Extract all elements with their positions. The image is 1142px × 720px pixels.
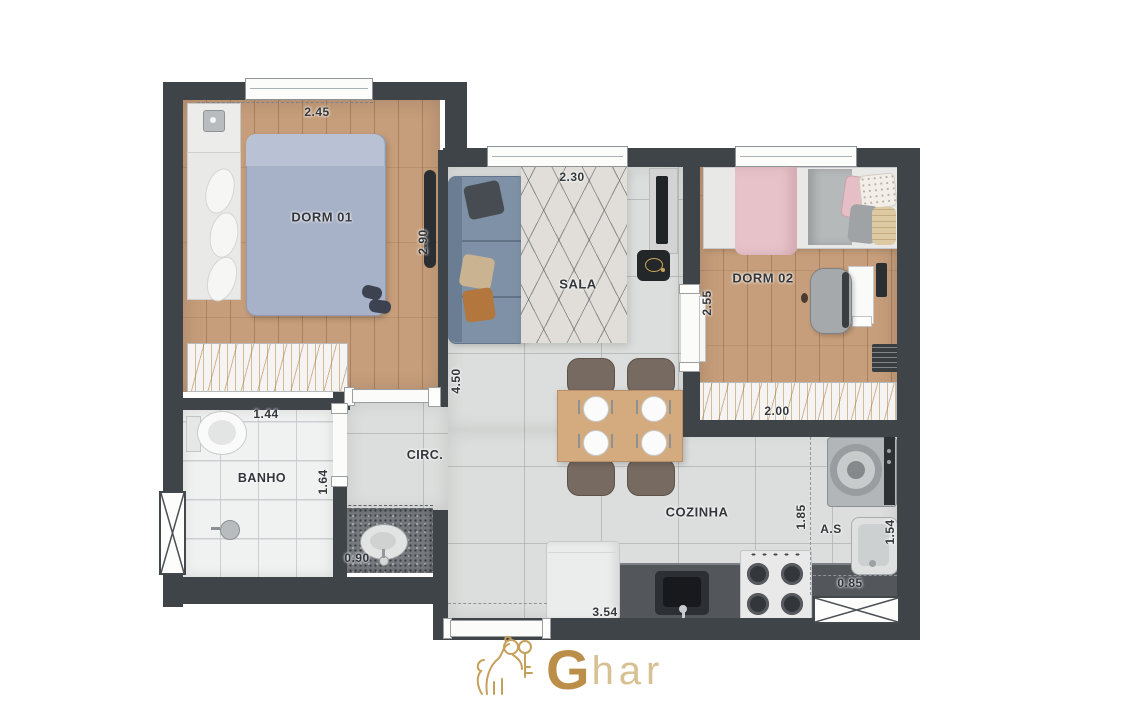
washer-panel-dot <box>887 460 891 464</box>
cozinha-height-dim: 1.85 <box>794 504 808 529</box>
washer-panel <box>884 437 895 505</box>
desk-chair-back <box>842 272 849 328</box>
door-jamb <box>428 387 441 407</box>
door-jamb <box>331 476 348 487</box>
dorm02-height-dim: 2.55 <box>700 290 714 315</box>
circ-label: CIRC. <box>407 448 444 462</box>
stove-knobs <box>748 552 804 557</box>
fridge-divider <box>548 552 616 553</box>
cozinha-width-dim: 3.54 <box>592 605 617 619</box>
banho-window <box>159 491 186 575</box>
plate <box>583 430 609 456</box>
as-divider-dash <box>810 437 811 595</box>
counter-dash <box>338 505 433 506</box>
sofa-cushion-line <box>462 240 523 242</box>
lion-and-key-icon <box>472 634 542 707</box>
banho-door-opening <box>333 412 347 478</box>
dorm01-label: DORM 01 <box>291 210 352 225</box>
cutlery <box>636 434 638 448</box>
sofa-pillow-tan <box>458 253 495 290</box>
dorm01-door-threshold <box>352 389 432 403</box>
lavatory-faucet-stem <box>382 549 385 558</box>
wall-segment <box>897 148 920 640</box>
dorm02-window <box>735 146 857 167</box>
plate <box>641 430 667 456</box>
pillow-knit <box>872 207 896 245</box>
bed-blanket-pink <box>735 167 797 255</box>
stove-burner <box>747 563 769 585</box>
laundry-faucet <box>869 560 876 567</box>
logo: G har <box>472 634 664 707</box>
plate <box>641 396 667 422</box>
sala-label: SALA <box>559 277 596 292</box>
sala-rug <box>521 167 627 343</box>
servico-label: A.S <box>820 522 842 536</box>
dorm01-wardrobe <box>187 343 348 392</box>
logo-text-g: G <box>546 645 590 695</box>
plate <box>583 396 609 422</box>
floor-plan-canvas: DORM 01 2.45 2.90 SALA 2.30 4.50 DORM 02… <box>0 0 1142 720</box>
sala-width-dim: 2.30 <box>559 170 584 184</box>
cutlery <box>611 434 613 448</box>
sala-window <box>487 146 628 167</box>
wall-segment <box>683 420 920 437</box>
kitchen-cabinet-dash <box>448 603 547 604</box>
door-jamb <box>679 362 700 372</box>
cutlery <box>669 434 671 448</box>
monitor <box>876 263 887 297</box>
dorm01-width-dim: 2.45 <box>304 105 329 119</box>
dorm02-label: DORM 02 <box>732 271 793 286</box>
stove-burner <box>747 593 769 615</box>
mouse <box>801 293 808 303</box>
cutlery <box>611 400 613 414</box>
banho-width-dim: 1.44 <box>253 407 278 421</box>
dorm02-wardrobe <box>695 382 897 422</box>
kitchen-sink-basin <box>663 577 701 607</box>
door-jamb <box>331 403 348 414</box>
logo-text-rest: har <box>592 651 665 691</box>
cutlery <box>578 400 580 414</box>
washer-panel-dot <box>887 449 891 453</box>
banho-height-dim: 1.64 <box>316 469 330 494</box>
dorm01-height-dim: 2.90 <box>416 229 430 254</box>
wall-segment <box>445 82 467 154</box>
banho-label: BANHO <box>238 471 286 485</box>
cozinha-label: COZINHA <box>666 505 729 520</box>
wall-segment <box>163 577 438 604</box>
lavatory-width-dim: 0.90 <box>344 551 369 565</box>
lavatory-sink-inner <box>370 532 396 550</box>
servico-height-dim: 1.54 <box>883 519 897 544</box>
shower-handle <box>211 527 220 530</box>
tv <box>656 176 668 244</box>
shower-head <box>220 520 240 540</box>
door-jamb <box>679 284 700 294</box>
dorm02-door-opening <box>681 292 700 364</box>
sala-height-dim: 4.50 <box>449 368 463 393</box>
washer-drum-inner <box>847 461 865 479</box>
keyboard <box>852 316 872 327</box>
sofa-backrest <box>448 176 462 342</box>
dorm01-window <box>245 78 373 100</box>
wall-segment <box>438 150 448 407</box>
dining-chair <box>567 458 615 496</box>
servico-window <box>813 596 900 624</box>
toilet-bowl-inner <box>208 420 236 445</box>
media-gold-dot <box>661 268 665 272</box>
wall-segment <box>683 148 700 295</box>
stove-burner <box>781 593 803 615</box>
cutlery <box>669 400 671 414</box>
sofa-pillow-orange <box>462 287 496 323</box>
bed-sheet-fold <box>246 134 384 166</box>
cutlery <box>636 400 638 414</box>
servico-width-dim: 0.85 <box>837 576 862 590</box>
printer <box>872 344 898 372</box>
stove-burner <box>781 563 803 585</box>
lamp-dot <box>210 117 216 123</box>
cutlery <box>578 434 580 448</box>
dining-chair <box>627 458 675 496</box>
dorm02-closet-dim: 2.00 <box>764 404 789 418</box>
wall-segment <box>433 510 448 622</box>
